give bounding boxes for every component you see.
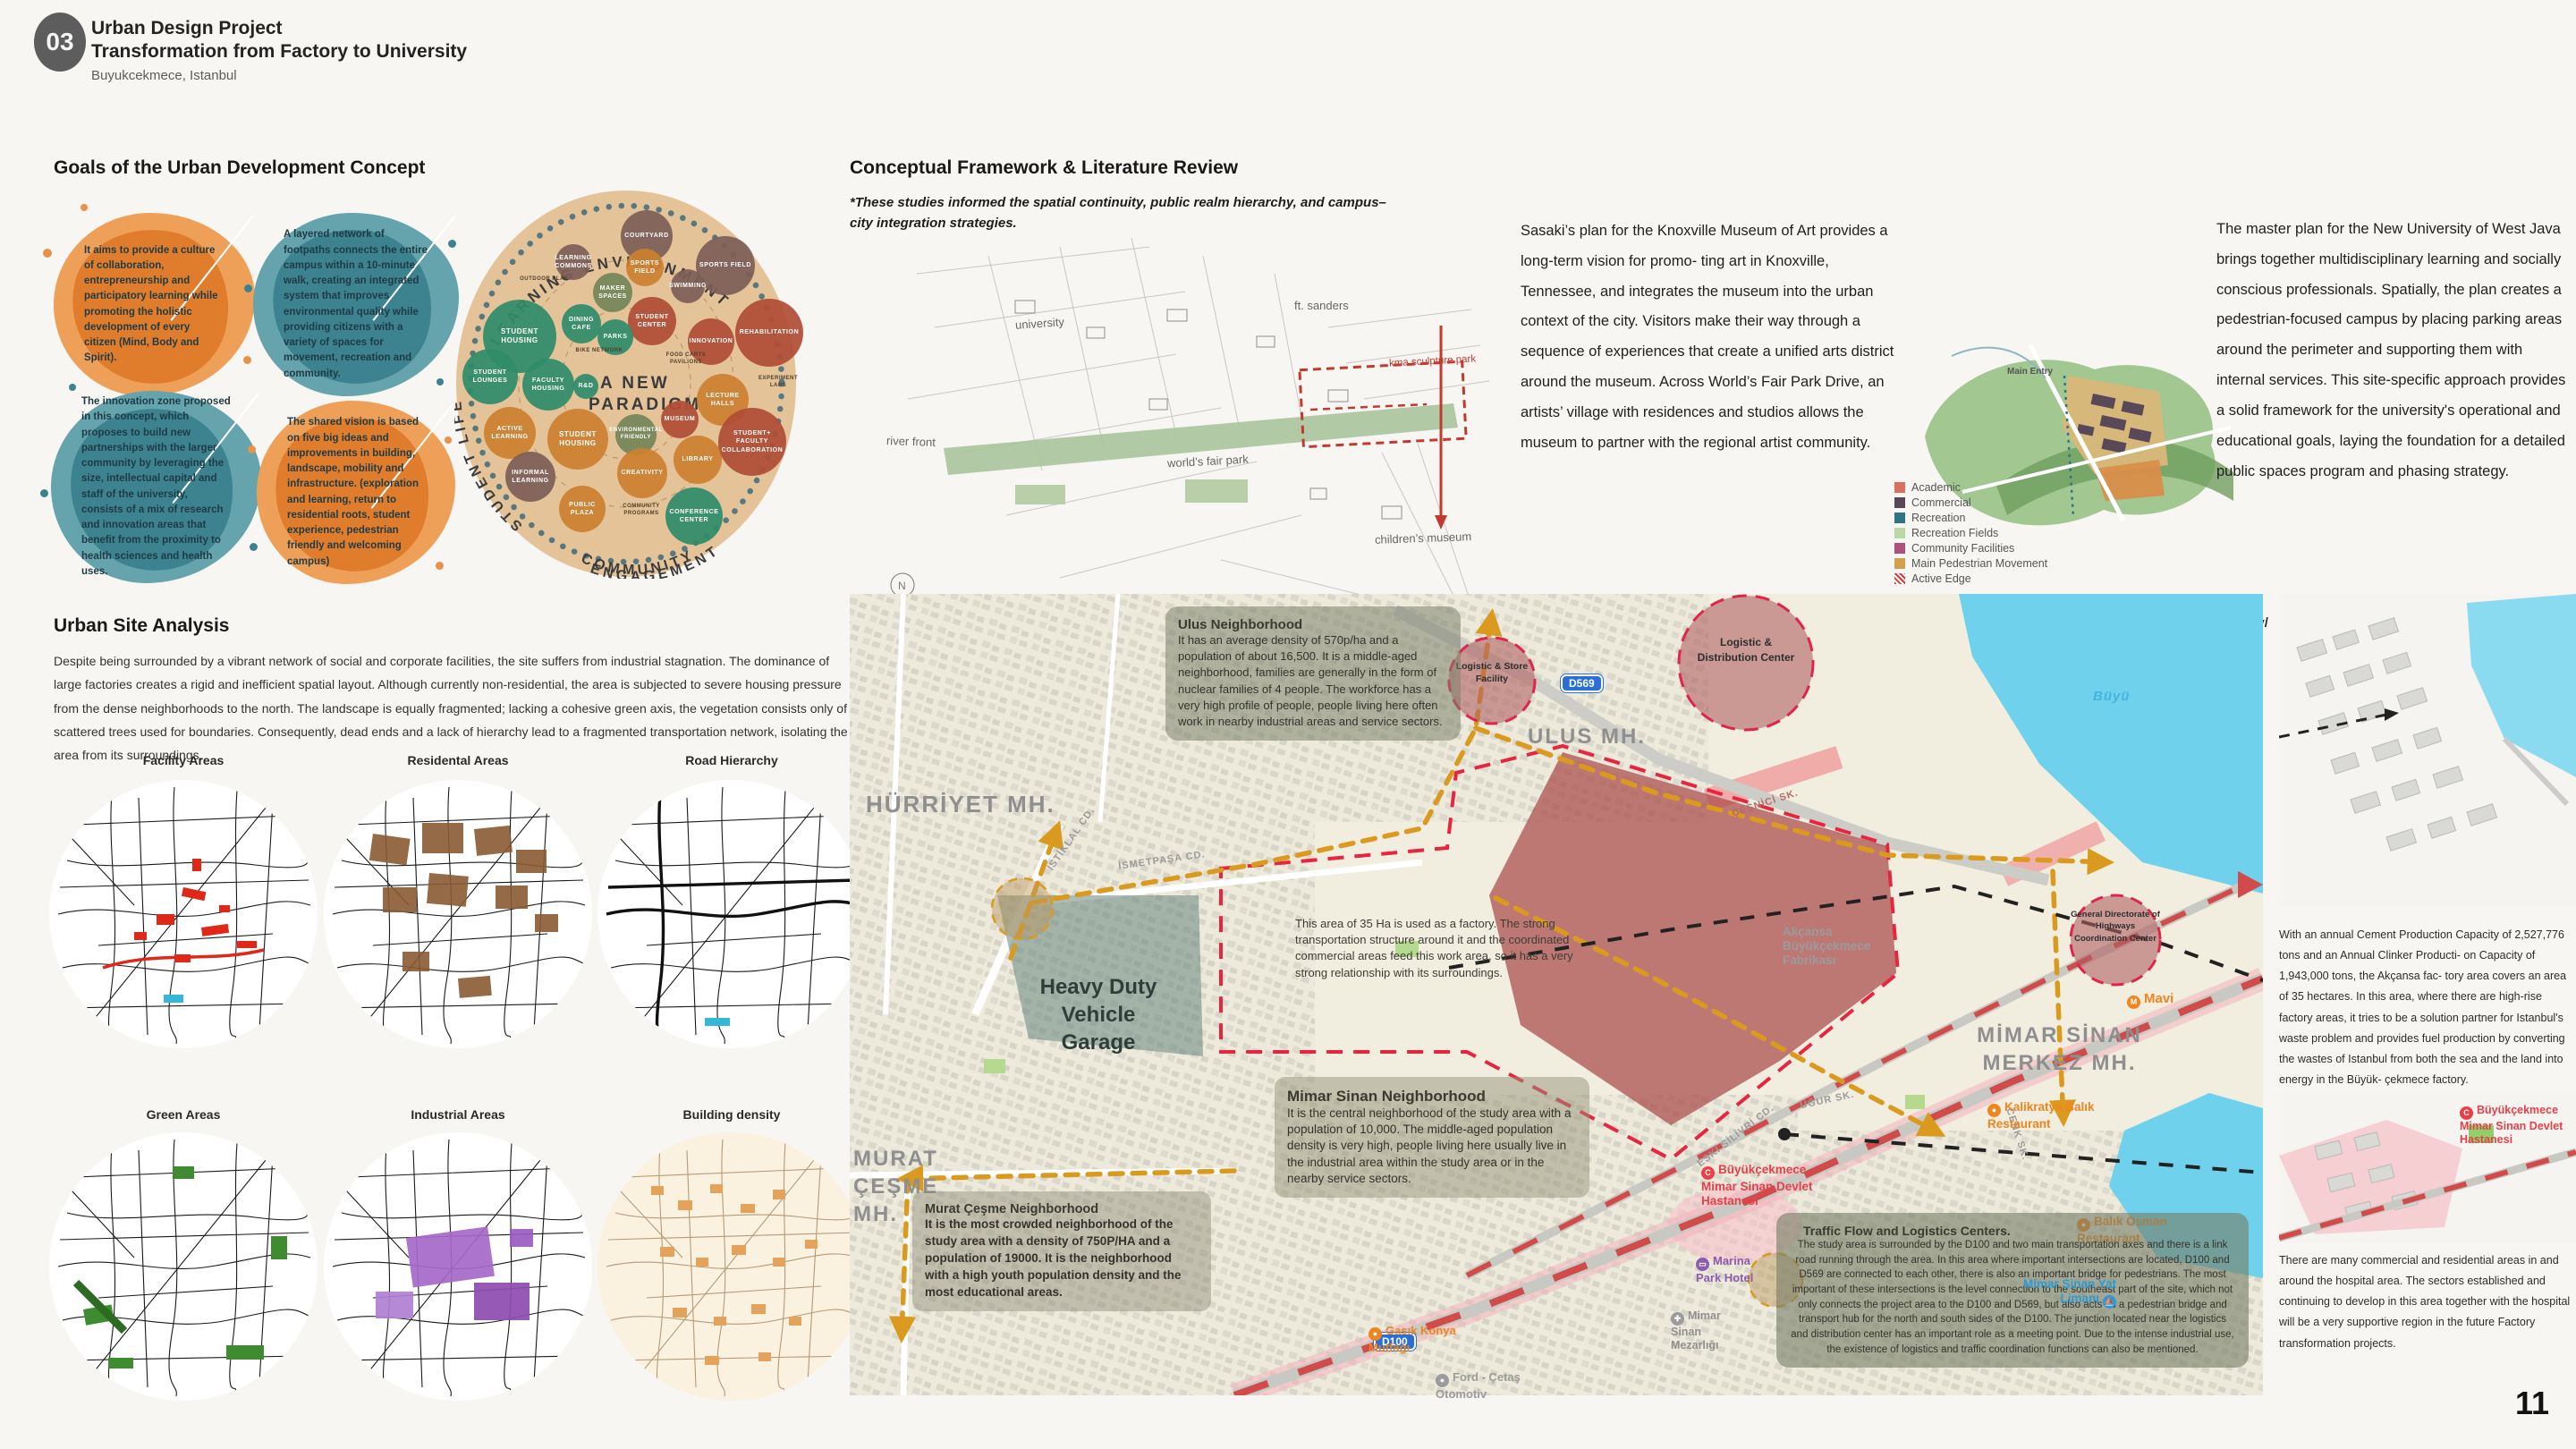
zone-highways-center: General Directorate of Highways Coordina…	[2068, 909, 2163, 945]
goal-blob-1-text: It aims to provide a culture of collabor…	[54, 213, 255, 396]
fig-label-density: Building density	[597, 1107, 866, 1122]
site-analysis-heading: Urban Site Analysis	[54, 615, 229, 637]
car-dealer-icon: ●	[1436, 1374, 1449, 1387]
annotation-murat: Murat Çeşme Neighborhood It is the most …	[912, 1191, 1211, 1311]
bubble-informal-learning: INFORMAL LEARNING	[505, 452, 555, 502]
sasaki-paragraph: Sasaki’s plan for the Knoxville Museum o…	[1521, 216, 1901, 459]
restaurant-icon: ●	[1987, 1104, 2001, 1117]
section-number-badge: 03	[34, 13, 86, 72]
bubble-collaboration: STUDENT+ FACULTY COLLABORATION	[718, 408, 786, 476]
legend-active-edge: Active Edge	[1894, 572, 2047, 585]
poi-ford: ●Ford - Çetaş Otomotiv	[1436, 1370, 1534, 1402]
knoxville-sketch-map: N university ft. sanders river front wor…	[881, 220, 1512, 627]
bubble-student-lounges: STUDENT LOUNGES	[462, 349, 518, 404]
poi-hospital-map: CBüyükçekmece Mimar Sinan Devlet Hastane…	[1701, 1163, 1844, 1208]
legend-community-facilities: Community Facilities	[1894, 542, 2047, 555]
legend-commercial: Commercial	[1894, 496, 2047, 509]
water-label: Büyü	[2093, 689, 2131, 704]
hospital-area-paragraph: There are many commercial and residentia…	[2279, 1250, 2576, 1354]
hospital-icon: C	[1701, 1166, 1715, 1180]
map-residential-areas	[324, 780, 592, 1048]
render-axon-top	[2279, 594, 2576, 907]
swatch-community-facilities	[1894, 543, 1905, 554]
poi-mezarlik: ✚Mimar Sinan Mezarlığı	[1671, 1309, 1751, 1352]
hotel-icon: ▭	[1696, 1258, 1709, 1271]
swatch-commercial	[1894, 497, 1905, 508]
bubble-creativity: CREATIVITY	[617, 448, 667, 498]
bubble-faculty-housing: FACULTY HOUSING	[522, 359, 574, 411]
goal-blob-4: The shared vision is based on five big i…	[257, 401, 455, 584]
bubble-swimming: SWIMMING	[671, 269, 705, 303]
bubble-student-housing-b: STUDENT HOUSING	[547, 409, 608, 470]
project-title: Urban Design Project	[91, 18, 283, 39]
map-road-hierarchy	[597, 780, 866, 1048]
goal-blob-1: It aims to provide a culture of collabor…	[54, 213, 255, 396]
swatch-recreation-fields	[1894, 528, 1905, 538]
note-experiment-labs: EXPERIMENT LABS	[750, 376, 807, 390]
store-icon: M	[2127, 996, 2140, 1009]
goal-blob-3-text: The innovation zone proposed in this con…	[51, 391, 261, 583]
goal-blob-4-text: The shared vision is based on five big i…	[257, 401, 455, 584]
poi-akcansa: Akçansa Büyükçekmece Fabrikası	[1783, 925, 1890, 969]
district-ulus: ULUS MH.	[1528, 724, 1646, 750]
bubble-public-plaza: PUBLIC PLAZA	[559, 486, 606, 532]
legend-pedestrian-movement: Main Pedestrian Movement	[1894, 557, 2047, 570]
fig-label-road: Road Hierarchy	[597, 753, 866, 767]
new-paradigm-diagram: LEARNING ENVIRONMENT STUDENT LIFE COMMUN…	[454, 190, 799, 579]
label-main-entry: Main Entry	[2007, 367, 2053, 377]
goals-heading: Goals of the Urban Development Concept	[54, 157, 425, 179]
label-river-front: river front	[886, 434, 936, 449]
legend-recreation: Recreation	[1894, 512, 2047, 524]
west-java-legend: Academic Commercial Recreation Recreatio…	[1894, 481, 2047, 588]
page-number: 11	[2515, 1385, 2549, 1422]
map-facility-areas	[49, 780, 318, 1048]
map-green-areas	[49, 1132, 318, 1401]
legend-academic: Academic	[1894, 481, 2047, 494]
swatch-academic	[1894, 482, 1905, 493]
annotation-factory: This area of 35 Ha is used as a factory.…	[1295, 916, 1606, 981]
poi-kalikratya: ●Kalikratya Balık Restaurant	[1987, 1100, 2131, 1131]
note-bike-network: BIKE NETWORK	[571, 348, 628, 355]
road-badge-d569: D569	[1561, 674, 1603, 692]
poi-mavi: MMavi	[2127, 991, 2173, 1009]
cement-paragraph: With an annual Cement Production Capacit…	[2279, 925, 2576, 1090]
framework-heading: Conceptual Framework & Literature Review	[850, 157, 1238, 179]
poi-marina-park: ▭Marina Park Hotel	[1696, 1254, 1776, 1285]
bubble-sports-field-a: SPORTS FIELD	[626, 249, 664, 286]
map-building-density	[597, 1132, 866, 1401]
goal-blob-3: The innovation zone proposed in this con…	[51, 391, 261, 583]
westjava-paragraph: The master plan for the New University o…	[2216, 215, 2572, 487]
fig-label-green: Green Areas	[49, 1107, 318, 1122]
bubble-library: LIBRARY	[674, 436, 722, 484]
bubble-maker-spaces: MAKER SPACES	[593, 273, 632, 312]
zone-garage: Heavy Duty Vehicle Garage	[1029, 973, 1168, 1057]
swatch-recreation	[1894, 513, 1905, 523]
bubble-museum: MUSEUM	[661, 401, 699, 438]
project-subtitle: Transformation from Factory to Universit…	[91, 41, 467, 63]
poster-board: 03 Urban Design Project Transformation f…	[0, 0, 2576, 1449]
site-map: HÜRRİYET MH. ULUS MH. MURAT ÇEŞME MH. Mİ…	[850, 594, 2263, 1395]
bubble-dining-cafe: DINING CAFE	[562, 304, 601, 343]
marina-icon: ⛵	[2103, 1295, 2116, 1309]
fig-label-residential: Residental Areas	[324, 753, 592, 767]
restaurant-icon: ●	[1368, 1327, 1382, 1341]
annotation-mimar: Mimar Sinan Neighborhood It is the centr…	[1275, 1077, 1589, 1198]
fig-label-facility: Facility Areas	[49, 753, 318, 767]
goal-blob-2: A layered network of footpaths connects …	[253, 213, 459, 396]
zone-distribution-center: Logistic & Distribution Center	[1690, 635, 1801, 666]
legend-recreation-fields: Recreation Fields	[1894, 527, 2047, 539]
bubble-rnd: R&D	[573, 374, 598, 399]
svg-text:N: N	[898, 580, 906, 592]
poi-hospital-right: CBüyükçekmece Mimar Sinan Devlet Hastane…	[2460, 1104, 2572, 1147]
swatch-pedestrian-movement	[1894, 558, 1905, 569]
bubble-learning-commons: LEARNING COMMONS	[555, 244, 591, 280]
site-analysis-paragraph: Despite being surrounded by a vibrant ne…	[54, 649, 850, 767]
district-hurriyet: HÜRRİYET MH.	[866, 791, 1055, 818]
hospital-icon: C	[2460, 1106, 2473, 1120]
note-community-programs: COMMUNITY PROGRAMS	[613, 504, 670, 518]
goal-blob-2-text: A layered network of footpaths connects …	[253, 213, 459, 396]
bubble-rehabilitation: REHABILITATION	[735, 299, 803, 367]
map-industrial-areas	[324, 1132, 592, 1401]
center-title-1: A NEW	[600, 374, 670, 393]
cemetery-icon: ✚	[1671, 1312, 1684, 1326]
annotation-ulus: Ulus Neighborhood It has an average dens…	[1165, 606, 1461, 741]
label-ft-sanders: ft. sanders	[1294, 299, 1349, 312]
district-mimar: MİMAR SİNAN MERKEZ MH.	[1963, 1021, 2156, 1077]
note-outdoor-play: OUTDOOR PLAY	[515, 276, 572, 284]
poi-yat-limani: Mimar Sinan Yat Limanı⛵	[2009, 1277, 2116, 1309]
swatch-active-edge	[1894, 573, 1905, 584]
fig-label-industrial: Industrial Areas	[324, 1107, 592, 1122]
project-location: Buyukcekmece, Istanbul	[91, 68, 237, 83]
note-food-carts: FOOD CARTS PAVILIONS	[657, 352, 715, 367]
poi-gasik: ●Gasık Konya Mutfağı	[1368, 1324, 1467, 1355]
bubble-conference-center: CONFERENCE CENTER	[665, 487, 723, 545]
bubble-student-center: STUDENT CENTER	[628, 297, 676, 345]
